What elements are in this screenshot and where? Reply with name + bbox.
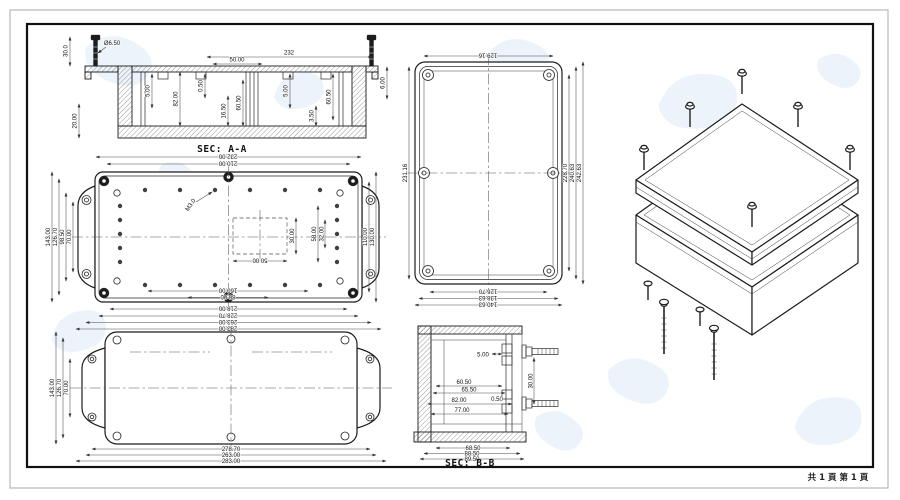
dim-boss-depth: 16.50: [222, 103, 228, 119]
dim-stud-height: 30.0: [64, 45, 70, 57]
dim-right-b: 130.00: [370, 227, 376, 246]
dim-bb-depth-d: 77.00: [454, 408, 470, 414]
dim-fl-bottom-c: 283.00: [222, 459, 241, 465]
dim-bb-lip: 0.50: [491, 397, 503, 403]
dim-top-b: 210.00: [218, 160, 237, 166]
dim-holes-h-a: 160.00: [218, 287, 237, 293]
dim-flange-edge: 6.00: [381, 77, 387, 89]
dim-lip: 0.50: [199, 80, 205, 92]
dim-center-span: 50.00: [229, 58, 245, 64]
view-sec-bb: 5.00 60.50 65.50 82.00 0.50 77.00 30.00 …: [414, 326, 558, 469]
dim-wall-bottom: 20.00: [73, 113, 79, 129]
dim-bb-depth-b: 65.50: [461, 388, 477, 394]
dim-holes-h-b: 80.00: [220, 293, 236, 299]
dim-left-b: 126.70: [53, 227, 59, 246]
dim-rib-left: 5.00: [146, 85, 152, 97]
dim-bb-screw-span: 30.00: [529, 373, 535, 389]
dim-left-c: 98.50: [60, 229, 66, 245]
dim-lid-top: 129.16: [478, 52, 497, 58]
dim-bottom-b: 228.70: [218, 312, 237, 318]
dim-lid-right-c: 242.63: [577, 163, 583, 182]
dim-depth-right: 60.50: [327, 89, 333, 105]
dim-lid-bottom-b: 138.63: [478, 294, 497, 300]
dim-lid-bottom-c: 140.63: [478, 301, 497, 307]
cover-screw-right: [367, 35, 376, 66]
dim-bb-boss: 5.00: [477, 353, 489, 359]
dim-lid-bottom-a: 126.70: [478, 288, 497, 294]
dim-floor: 3.50: [310, 110, 316, 122]
dim-pocket-h: 30.00: [290, 228, 296, 244]
dim-fl-left-c: 70.00: [64, 380, 70, 396]
view-base-plan: M3.0 232.00 210.00 218.00 228.70 263.00 …: [46, 153, 386, 331]
dim-fl-left-a: 143.00: [50, 378, 56, 397]
mount-screw-top: [522, 345, 558, 358]
section-body: [85, 66, 378, 138]
view-lid-plan: 129.16 231.16 228.70 240.63 242.63 126.7…: [403, 52, 583, 307]
dim-lid-right-a: 228.70: [563, 163, 569, 182]
dim-left-d: 70.00: [67, 229, 73, 245]
dim-bb-depth-c: 82.00: [451, 398, 467, 404]
dim-overall-width: 232: [284, 51, 295, 57]
dim-lid-left: 231.16: [403, 163, 409, 182]
dim-right-a: 110.00: [363, 227, 369, 246]
dim-bottom-c: 263.00: [218, 318, 237, 324]
dim-pocket-w: 50.00: [252, 257, 268, 263]
dim-bottom-d: 283.00: [218, 325, 237, 331]
dim-lid-right-b: 240.63: [570, 163, 576, 182]
dim-fl-left-b: 126.70: [57, 378, 63, 397]
dim-left-a: 143.00: [46, 227, 52, 246]
dim-stud-dia: Ø6.50: [104, 41, 121, 47]
drawing-canvas: 共 1 頁 第 1 頁: [0, 0, 900, 500]
page-footer: 共 1 頁 第 1 頁: [808, 472, 869, 483]
section-label-bb: SEC: B-B: [445, 458, 495, 469]
dim-depth-total: 82.00: [174, 91, 180, 107]
dim-depth-mid: 60.50: [237, 95, 243, 111]
dim-top-a: 232.00: [218, 153, 237, 159]
mount-screw-bottom: [522, 397, 558, 410]
dim-bottom-a: 218.00: [218, 305, 237, 311]
dim-rib-right: 5.00: [284, 85, 290, 97]
dim-bb-depth-a: 60.50: [456, 380, 472, 386]
dim-holes-v-b: 32.00: [320, 226, 326, 242]
drawing-sheet: 共 1 頁 第 1 頁: [0, 0, 900, 500]
dim-holes-v-a: 58.00: [312, 226, 318, 242]
view-flange-plan: 143.00 126.70 70.00 278.70 263.00 283.00: [50, 326, 392, 465]
